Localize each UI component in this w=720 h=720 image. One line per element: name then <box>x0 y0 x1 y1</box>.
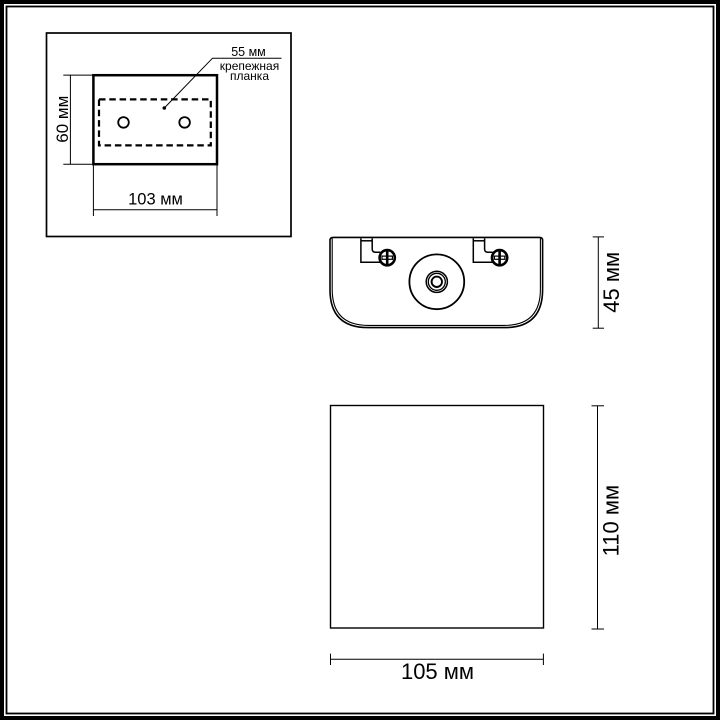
svg-text:103 мм: 103 мм <box>128 191 183 209</box>
svg-text:105 мм: 105 мм <box>401 659 474 684</box>
svg-text:планка: планка <box>230 69 269 83</box>
svg-text:110 мм: 110 мм <box>598 485 623 556</box>
svg-text:55 мм: 55 мм <box>231 45 266 59</box>
svg-text:60 мм: 60 мм <box>53 96 72 143</box>
svg-text:45 мм: 45 мм <box>599 252 624 313</box>
